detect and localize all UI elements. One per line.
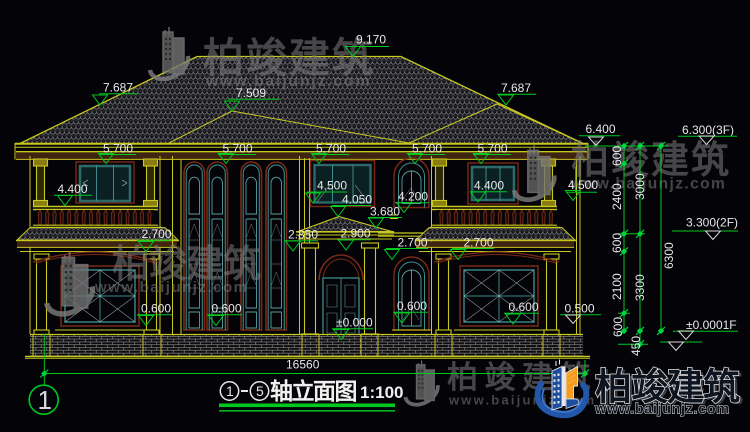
svg-text:1: 1: [38, 385, 52, 415]
svg-text:0.600: 0.600: [141, 302, 171, 316]
svg-text:4.050: 4.050: [342, 193, 372, 207]
svg-text:4.400: 4.400: [58, 182, 88, 196]
svg-text:www.baijunjz.com: www.baijunjz.com: [594, 402, 730, 418]
svg-text:0.500: 0.500: [565, 302, 595, 316]
svg-text:5: 5: [256, 383, 264, 399]
svg-text:9.170: 9.170: [356, 33, 386, 47]
svg-text:600: 600: [611, 317, 625, 337]
svg-text:3.300(2F): 3.300(2F): [686, 216, 738, 230]
svg-text:7.687: 7.687: [501, 81, 531, 95]
svg-text:16560: 16560: [286, 358, 320, 372]
svg-text:7.687: 7.687: [103, 81, 133, 95]
svg-text:2.700: 2.700: [398, 236, 428, 250]
svg-text:2.850: 2.850: [288, 228, 318, 242]
svg-text:6.400: 6.400: [586, 122, 616, 136]
svg-text:1:100: 1:100: [360, 383, 403, 402]
svg-text:轴立面图: 轴立面图: [270, 378, 357, 404]
svg-text:0.600: 0.600: [397, 299, 427, 313]
svg-text:0.600: 0.600: [212, 302, 242, 316]
svg-text:4.500: 4.500: [568, 178, 598, 192]
svg-text:4.200: 4.200: [398, 190, 428, 204]
svg-text:1: 1: [226, 383, 234, 399]
svg-text:±0.0001F: ±0.0001F: [686, 318, 737, 332]
svg-text:600: 600: [610, 146, 624, 166]
svg-text:6.300(3F): 6.300(3F): [682, 123, 734, 137]
svg-text:www.baijunjz.com: www.baijunjz.com: [205, 73, 371, 90]
svg-text:2.700: 2.700: [142, 227, 172, 241]
svg-text:4.500: 4.500: [317, 179, 347, 193]
svg-text:0.600: 0.600: [509, 300, 539, 314]
svg-text:www.baijunjz.com: www.baijunjz.com: [94, 279, 248, 296]
svg-text:450: 450: [629, 336, 643, 356]
svg-text:3.680: 3.680: [370, 205, 400, 219]
svg-text:7.509: 7.509: [236, 86, 266, 100]
svg-text:2400: 2400: [610, 183, 624, 210]
svg-text:3300: 3300: [633, 274, 647, 301]
svg-text:600: 600: [610, 233, 624, 253]
svg-text:4.400: 4.400: [474, 179, 504, 193]
svg-text:6300: 6300: [662, 242, 676, 269]
svg-text:2100: 2100: [610, 273, 624, 300]
svg-text:±0.000: ±0.000: [336, 316, 373, 330]
svg-text:3000: 3000: [633, 173, 647, 200]
svg-text:2.700: 2.700: [464, 236, 494, 250]
svg-text:2.900: 2.900: [341, 227, 371, 241]
